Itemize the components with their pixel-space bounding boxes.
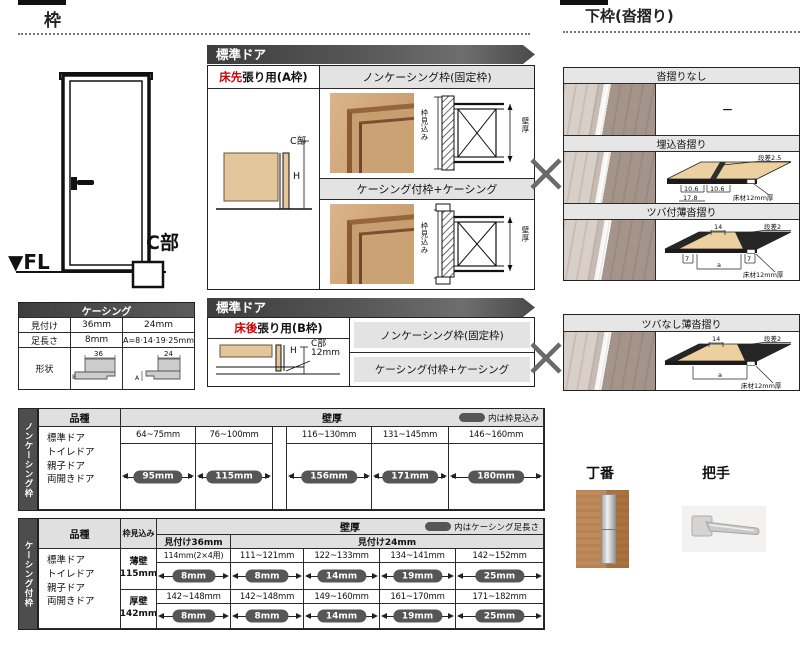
t2-r2-dim-4: 25mm	[456, 604, 544, 629]
casing-mikomi-label: 枠見込み	[419, 222, 430, 254]
svg-text:14: 14	[712, 335, 720, 343]
casing-wall-label: 壁厚	[520, 226, 531, 242]
thick-wall-dim: 142mm	[121, 609, 157, 621]
noncasing-row-header: ノンケーシング枠(固定枠)	[320, 66, 534, 89]
t2-note-text: 内はケーシング足長さ	[454, 521, 539, 533]
door-handle-plate	[71, 177, 77, 190]
dim-pill: 171mm	[382, 470, 438, 483]
svg-text:24: 24	[164, 350, 173, 358]
threshold-umekomi-photo	[564, 152, 656, 203]
casing-row-header: ケーシング付枠+ケーシング	[320, 178, 534, 200]
threshold-tsuba-photo	[564, 220, 656, 280]
dim-pill: 19mm	[393, 570, 442, 583]
noncasing-side-label: ノンケーシング枠	[22, 422, 34, 498]
t1-gap-column	[273, 427, 287, 510]
svg-text:床材12mm厚: 床材12mm厚	[743, 270, 784, 279]
t1-hinshu-header: 品種	[39, 409, 121, 427]
ashinagasa-36: 8mm	[71, 333, 123, 347]
t2-r2-range-0: 142~148mm	[157, 590, 231, 604]
t2-hinshu-header: 品種	[39, 519, 121, 549]
frame-a-right-column: ノンケーシング枠(固定枠) 枠見込み	[320, 66, 534, 289]
dim-pill: 14mm	[317, 610, 366, 623]
frame-a-table: 床先張り用(A枠) C部 H ノンケーシング枠(固定枠)	[207, 65, 535, 290]
svg-text:14: 14	[714, 223, 722, 231]
t2-r2-dim-1: 8mm	[231, 604, 304, 629]
thin-wall-type: 薄壁	[129, 557, 147, 569]
shape-24-drawing: 24 A	[126, 349, 192, 389]
dim-pill: 19mm	[393, 610, 442, 623]
page-title-bottom-frame: 下枠(沓摺り)	[585, 5, 674, 26]
fl-label: ▼FL	[8, 250, 50, 274]
threshold-tsubanashi-header: ツバなし薄沓摺り	[564, 315, 799, 332]
threshold-table-2: ツバなし薄沓摺り 14 段差2	[563, 314, 800, 391]
door-type: 標準ドア	[47, 554, 85, 568]
frame-a-h-label: H	[293, 171, 300, 182]
mitsuke-label: 見付け	[19, 318, 71, 332]
casing-size-table: ケーシング付枠 品種 枠見込み 壁厚 内はケーシング足長さ 見付け36mm 見付…	[18, 518, 545, 630]
threshold-tsuba-header: ツバ付薄沓摺り	[564, 204, 799, 220]
t1-dim-2: 156mm	[287, 444, 372, 510]
door-elevation: ▼FL C部	[8, 60, 203, 295]
t2-door-types: 標準ドア トイレドア 親子ドア 両開きドア	[39, 549, 121, 629]
combine-x-icon	[529, 157, 563, 191]
dim-pill: 156mm	[301, 470, 357, 483]
threshold-umekomi-header: 埋込沓摺り	[564, 136, 799, 152]
threshold-none-photo	[564, 84, 656, 135]
noncasing-mikomi-label: 枠見込み	[419, 109, 430, 141]
banner-b-label: 標準ドア	[216, 300, 266, 315]
t2-thin-wall: 薄壁 115mm	[121, 549, 157, 590]
casing-row-content: 枠見込み	[320, 200, 534, 289]
noncasing-side-band: ノンケーシング枠	[18, 408, 38, 511]
t2-group-36: 見付け36mm	[157, 535, 231, 549]
frame-b-row1: ノンケーシング枠(固定枠)	[350, 318, 534, 353]
door-type: 標準ドア	[47, 432, 85, 446]
mitsuke-36: 36mm	[71, 318, 123, 332]
dim-pill: 180mm	[468, 470, 524, 483]
mitsuke-24: 24mm	[123, 318, 194, 332]
t2-r1-dim-2: 14mm	[304, 563, 380, 590]
door-type: 両開きドア	[47, 595, 95, 609]
frame-a-header-red: 床先	[219, 69, 242, 85]
t2-group-24: 見付け24mm	[231, 535, 544, 549]
t1-dim-1: 115mm	[196, 444, 273, 510]
door-handle-lever	[77, 180, 94, 185]
frame-a-header: 床先張り用(A枠)	[208, 66, 319, 89]
t2-r1-dim-0: 8mm	[157, 563, 231, 590]
combine-x-icon-2	[529, 341, 563, 375]
frame-b-header-rest: 張り用(B枠)	[257, 320, 322, 336]
banner-standard-door-a: 標準ドア	[207, 45, 535, 64]
svg-text:段差2: 段差2	[764, 334, 781, 343]
t2-kabeatsu-header: 壁厚 内はケーシング足長さ	[157, 519, 544, 535]
threshold-tsuba-drawing: 14 段差2 7 a 7 床材12mm厚	[656, 220, 799, 280]
t1-kabeatsu-label: 壁厚	[322, 410, 342, 425]
dim-pill: 115mm	[206, 470, 262, 483]
casing-photo	[330, 204, 414, 284]
frame-a-left-column: 床先張り用(A枠) C部 H	[208, 66, 320, 289]
keijou-label: 形状	[19, 348, 71, 389]
t2-r1-dim-4: 25mm	[456, 563, 544, 590]
door-type: 親子ドア	[47, 460, 85, 474]
noncasing-size-table: ノンケーシング枠 品種 壁厚 内は枠見込み 標準ドア トイレドア 親子ドア 両開…	[18, 408, 545, 511]
svg-text:段差2: 段差2	[764, 222, 781, 231]
c-detail-callout-box	[133, 262, 163, 287]
t2-r1-range-2: 122~133mm	[304, 549, 380, 563]
t2-mikomi-header: 枠見込み	[121, 519, 157, 549]
ashinagasa-24: A=8·14·19·25mm	[123, 333, 194, 347]
t1-note: 内は枠見込み	[459, 412, 539, 424]
frame-a-diagram-drawing	[208, 89, 318, 268]
t2-r1-dim-1: 8mm	[231, 563, 304, 590]
dim-pill: 14mm	[317, 570, 366, 583]
frame-b-row1-label: ノンケーシング枠(固定枠)	[354, 322, 530, 348]
casing-spec-title: ケーシング	[19, 303, 194, 317]
t1-note-text: 内は枠見込み	[488, 412, 539, 424]
door-type: トイレドア	[47, 568, 95, 582]
banner-a-label: 標準ドア	[216, 47, 266, 62]
casing-side-label: ケーシング付枠	[22, 541, 34, 608]
t1-dim-0: 95mm	[121, 444, 196, 510]
t1-range-1: 76~100mm	[196, 427, 273, 444]
t1-kabeatsu-header: 壁厚 内は枠見込み	[121, 409, 544, 427]
c-detail-label: C部	[146, 228, 179, 255]
thin-wall-dim: 115mm	[121, 569, 157, 581]
shape-36-drawing: 36 8	[72, 349, 122, 389]
door-type: トイレドア	[47, 446, 95, 460]
noncasing-row-content: 枠見込み	[320, 89, 534, 178]
right-dotted-divider	[563, 31, 800, 33]
noncasing-size-grid: 品種 壁厚 内は枠見込み 標準ドア トイレドア 親子ドア 両開きドア 64~75…	[38, 408, 545, 511]
t2-r1-range-3: 134~141mm	[380, 549, 456, 563]
frame-b-row2: ケーシング付枠+ケーシング	[350, 353, 534, 386]
threshold-none-header: 沓摺りなし	[564, 68, 799, 84]
page-title-frame: 枠	[44, 6, 61, 31]
t2-r2-dim-0: 8mm	[157, 604, 231, 629]
frame-b-12mm-label: 12mm	[311, 348, 340, 358]
shape-36-cell: 36 8	[71, 348, 123, 389]
threshold-tsubanashi-photo	[564, 332, 656, 390]
t2-note: 内はケーシング足長さ	[425, 521, 539, 533]
dim-pill: 95mm	[133, 470, 182, 483]
t2-r1-range-0: 114mm(2×4用)	[157, 549, 231, 563]
door-type: 親子ドア	[47, 582, 85, 596]
t1-range-3: 131~145mm	[372, 427, 449, 444]
svg-text:a: a	[717, 261, 721, 269]
hinge-photo	[576, 490, 629, 568]
t1-range-4: 146~160mm	[449, 427, 544, 444]
door-type: 両開きドア	[47, 473, 95, 487]
dim-pill: 25mm	[475, 570, 524, 583]
frame-b-header-red: 床後	[234, 320, 257, 336]
t2-r2-range-3: 161~170mm	[380, 590, 456, 604]
noncasing-section-drawing	[432, 91, 520, 175]
svg-text:36: 36	[94, 350, 103, 358]
t2-r2-dim-3: 19mm	[380, 604, 456, 629]
frame-b-diagram-drawing	[208, 339, 348, 385]
casing-spec-table: ケーシング 見付け 36mm 24mm 足長さ 8mm A=8·14·19·25…	[18, 302, 195, 390]
handle-photo	[682, 506, 766, 552]
frame-a-header-rest: 張り用(A枠)	[242, 69, 307, 85]
banner-standard-door-b: 標準ドア	[207, 298, 535, 317]
t2-r1-dim-3: 19mm	[380, 563, 456, 590]
shape-24-cell: 24 A	[123, 348, 194, 389]
threshold-table: 沓摺りなし − 埋込沓摺り 段差2.5	[563, 67, 800, 281]
frame-b-diagram: C部 H 12mm	[208, 339, 349, 386]
t2-r2-range-2: 149~160mm	[304, 590, 380, 604]
ashinagasa-label: 足長さ	[19, 333, 71, 347]
frame-b-table: 床後張り用(B枠) C部 H 12mm ノンケー	[207, 317, 535, 387]
t2-r1-range-4: 142~152mm	[456, 549, 544, 563]
dim-pill: 25mm	[475, 610, 524, 623]
dim-pill: 8mm	[245, 570, 288, 583]
frame-b-left-column: 床後張り用(B枠) C部 H 12mm	[208, 318, 350, 386]
t1-dim-4: 180mm	[449, 444, 544, 510]
t1-dim-3: 171mm	[372, 444, 449, 510]
svg-text:床材12mm厚: 床材12mm厚	[741, 381, 782, 389]
left-dotted-divider	[18, 33, 530, 35]
t2-kabeatsu-label: 壁厚	[340, 519, 360, 534]
svg-text:7: 7	[747, 255, 751, 263]
t1-door-types: 標準ドア トイレドア 親子ドア 両開きドア	[39, 427, 121, 510]
pill-legend-icon	[459, 413, 485, 422]
t2-r1-range-1: 111~121mm	[231, 549, 304, 563]
t2-r2-range-1: 142~148mm	[231, 590, 304, 604]
frame-b-h-label: H	[290, 346, 297, 356]
t2-thick-wall: 厚壁 142mm	[121, 590, 157, 629]
casing-section-drawing	[432, 202, 520, 286]
t1-range-2: 116~130mm	[287, 427, 372, 444]
dim-pill: 8mm	[172, 570, 215, 583]
thick-wall-type: 厚壁	[129, 597, 147, 609]
hinge-label: 丁番	[586, 463, 614, 483]
casing-side-band: ケーシング付枠	[18, 518, 38, 630]
catalog-page: 枠 下枠(沓摺り) ▼FL C部 標準ドア 床先張り用(A枠)	[0, 0, 809, 649]
threshold-none-dash: −	[722, 102, 734, 118]
casing-size-grid: 品種 枠見込み 壁厚 内はケーシング足長さ 見付け36mm 見付け24mm 標準…	[38, 518, 545, 630]
svg-text:8: 8	[72, 374, 76, 381]
dim-pill: 8mm	[172, 610, 215, 623]
svg-text:段差2.5: 段差2.5	[758, 153, 781, 162]
t2-r2-dim-2: 14mm	[304, 604, 380, 629]
t1-range-0: 64~75mm	[121, 427, 196, 444]
threshold-umekomi-drawing: 段差2.5 10.6 10.6 17.8 床材12mm厚	[656, 152, 799, 203]
threshold-tsubanashi-drawing: 14 段差2 a 床材12mm厚	[656, 332, 799, 390]
frame-b-header: 床後張り用(B枠)	[208, 318, 349, 339]
t2-r2-range-4: 171~182mm	[456, 590, 544, 604]
frame-b-right-column: ノンケーシング枠(固定枠) ケーシング付枠+ケーシング	[350, 318, 534, 386]
frame-b-row2-label: ケーシング付枠+ケーシング	[354, 357, 530, 382]
frame-a-diagram: C部 H	[208, 89, 319, 289]
top-left-tab-mark	[18, 0, 66, 5]
lever-handle-drawing	[682, 506, 766, 552]
pill-legend-icon	[425, 522, 451, 531]
noncasing-photo	[330, 93, 414, 173]
svg-text:7: 7	[685, 255, 689, 263]
svg-text:A: A	[135, 375, 140, 382]
dim-pill: 8mm	[245, 610, 288, 623]
handle-label: 把手	[702, 463, 730, 483]
frame-a-c-label: C部	[290, 133, 306, 147]
svg-text:a: a	[718, 371, 722, 379]
noncasing-wall-label: 壁厚	[520, 117, 531, 133]
